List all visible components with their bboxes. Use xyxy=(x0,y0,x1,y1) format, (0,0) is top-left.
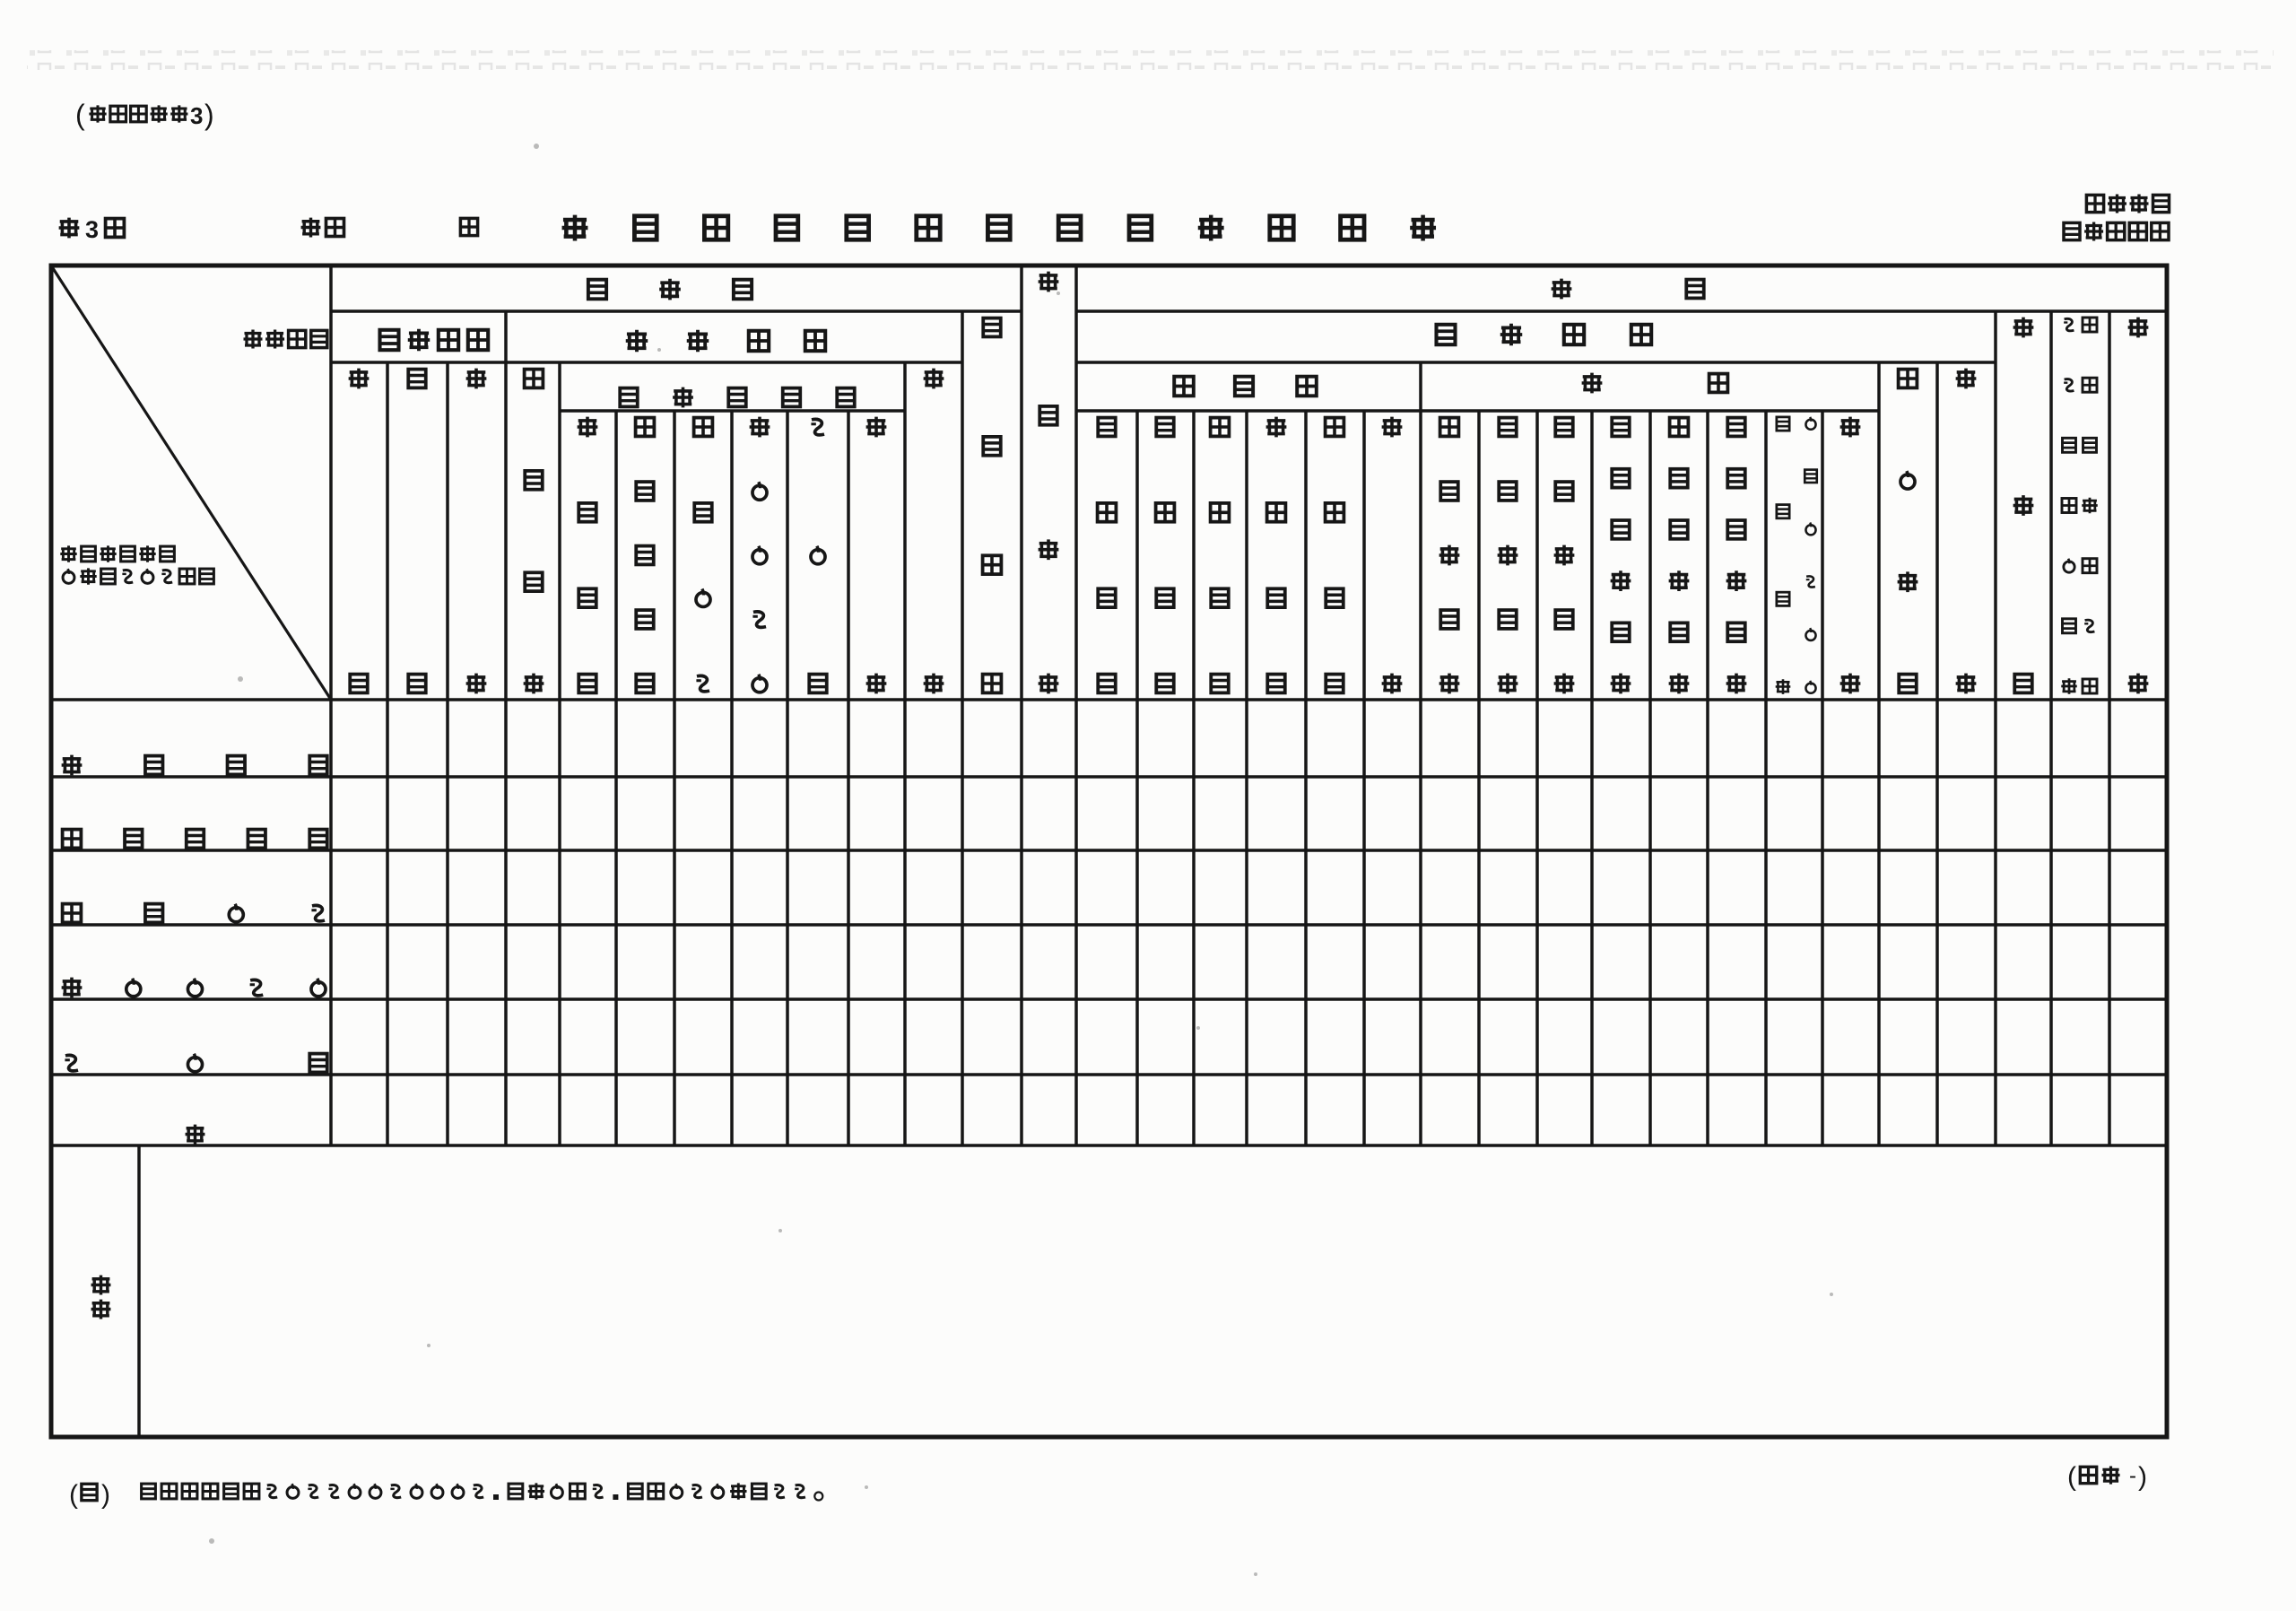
svg-text:3: 3 xyxy=(190,102,203,129)
svg-text:(: ( xyxy=(2067,1462,2076,1492)
svg-text:3: 3 xyxy=(85,216,99,243)
svg-text:(: ( xyxy=(75,99,85,131)
svg-text:): ) xyxy=(2138,1462,2147,1492)
svg-text:): ) xyxy=(204,99,214,131)
svg-text:): ) xyxy=(101,1480,110,1510)
svg-text:(: ( xyxy=(69,1480,78,1510)
svg-text:-: - xyxy=(2129,1464,2136,1488)
